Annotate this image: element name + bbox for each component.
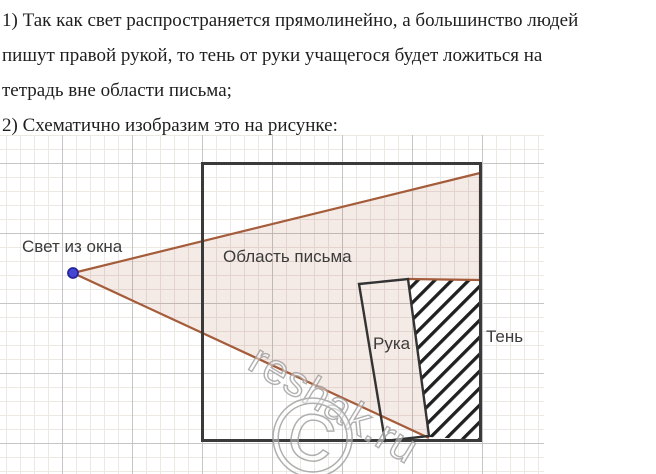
light-source-label: Свет из окна — [22, 237, 122, 257]
light-point — [68, 268, 78, 278]
shadow-top-ray — [408, 279, 480, 280]
writing-area-label: Область письма — [223, 247, 352, 267]
shadow-label: Тень — [486, 327, 523, 347]
solution-page: 1) Так как свет распространяется прямоли… — [0, 0, 656, 474]
hand-label: Рука — [373, 334, 410, 354]
